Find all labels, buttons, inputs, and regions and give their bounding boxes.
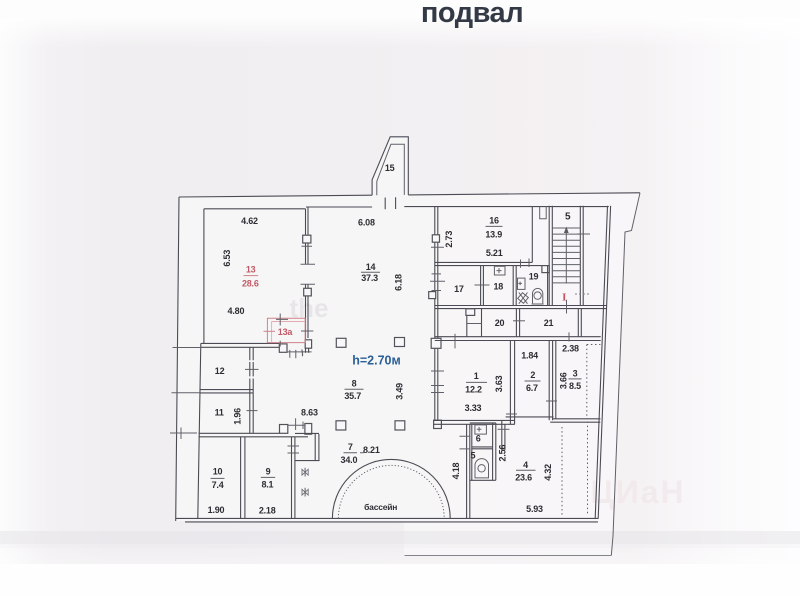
svg-text:I: I bbox=[562, 292, 566, 304]
svg-text:2.73: 2.73 bbox=[444, 231, 454, 248]
svg-text:5.93: 5.93 bbox=[526, 504, 543, 514]
svg-text:6.53: 6.53 bbox=[222, 250, 232, 267]
svg-text:1.96: 1.96 bbox=[232, 408, 242, 425]
svg-text:5: 5 bbox=[470, 450, 475, 460]
svg-text:3.66: 3.66 bbox=[559, 372, 569, 389]
svg-text:подвал: подвал bbox=[421, 0, 523, 29]
svg-text:8.63: 8.63 bbox=[301, 408, 318, 418]
svg-text:3.63: 3.63 bbox=[494, 375, 504, 392]
svg-text:18: 18 bbox=[493, 281, 503, 291]
svg-text:28.6: 28.6 bbox=[242, 278, 259, 288]
svg-text:21: 21 bbox=[544, 318, 554, 328]
svg-text:13.9: 13.9 bbox=[485, 230, 502, 240]
svg-text:8.21: 8.21 bbox=[363, 445, 380, 455]
svg-text:12: 12 bbox=[215, 366, 225, 376]
svg-text:8.5: 8.5 bbox=[569, 381, 581, 391]
svg-text:15: 15 bbox=[385, 163, 395, 173]
svg-text:4.18: 4.18 bbox=[451, 462, 461, 479]
svg-text:19: 19 bbox=[529, 271, 539, 281]
svg-text:37.3: 37.3 bbox=[361, 273, 378, 283]
svg-text:13а: 13а bbox=[278, 327, 294, 337]
svg-text:4.32: 4.32 bbox=[543, 464, 553, 481]
svg-text:4.62: 4.62 bbox=[241, 216, 258, 226]
svg-text:3: 3 bbox=[573, 368, 578, 378]
svg-text:6: 6 bbox=[476, 434, 481, 444]
svg-text:1: 1 bbox=[474, 371, 479, 381]
svg-text:3.49: 3.49 bbox=[395, 383, 405, 400]
svg-text:35.7: 35.7 bbox=[344, 391, 361, 401]
svg-text:10: 10 bbox=[213, 467, 223, 477]
svg-text:1.84: 1.84 bbox=[521, 351, 538, 361]
svg-text:2.56: 2.56 bbox=[498, 445, 508, 462]
svg-text:13: 13 bbox=[246, 265, 256, 275]
svg-text:2: 2 bbox=[530, 370, 535, 380]
svg-text:2.18: 2.18 bbox=[259, 506, 276, 516]
svg-text:4: 4 bbox=[523, 460, 528, 470]
svg-text:6.18: 6.18 bbox=[394, 274, 404, 291]
svg-text:20: 20 bbox=[495, 318, 505, 328]
svg-text:16: 16 bbox=[489, 215, 499, 225]
svg-text:5.21: 5.21 bbox=[486, 248, 503, 258]
svg-text:12.2: 12.2 bbox=[465, 385, 482, 395]
svg-text:1.90: 1.90 bbox=[208, 505, 225, 515]
svg-text:2.38: 2.38 bbox=[562, 344, 579, 354]
svg-text:7: 7 bbox=[348, 442, 353, 452]
svg-text:h=2.70м: h=2.70м bbox=[352, 353, 401, 367]
svg-text:7.4: 7.4 bbox=[212, 480, 224, 490]
svg-text:4.80: 4.80 bbox=[228, 306, 245, 316]
svg-text:6.7: 6.7 bbox=[526, 383, 538, 393]
svg-text:17: 17 bbox=[454, 284, 464, 294]
svg-text:8.1: 8.1 bbox=[261, 480, 273, 490]
svg-text:6.08: 6.08 bbox=[358, 218, 375, 228]
svg-text:11: 11 bbox=[215, 408, 224, 418]
svg-text:бассейн: бассейн bbox=[364, 502, 397, 512]
svg-text:3.33: 3.33 bbox=[465, 403, 482, 413]
svg-text:8: 8 bbox=[352, 378, 357, 388]
svg-text:5: 5 bbox=[565, 212, 571, 223]
svg-text:34.0: 34.0 bbox=[341, 455, 358, 465]
svg-text:9: 9 bbox=[266, 466, 271, 476]
svg-text:23.6: 23.6 bbox=[515, 472, 532, 482]
svg-text:14: 14 bbox=[366, 262, 376, 272]
svg-text:ЦИаН: ЦИаН bbox=[590, 474, 685, 510]
